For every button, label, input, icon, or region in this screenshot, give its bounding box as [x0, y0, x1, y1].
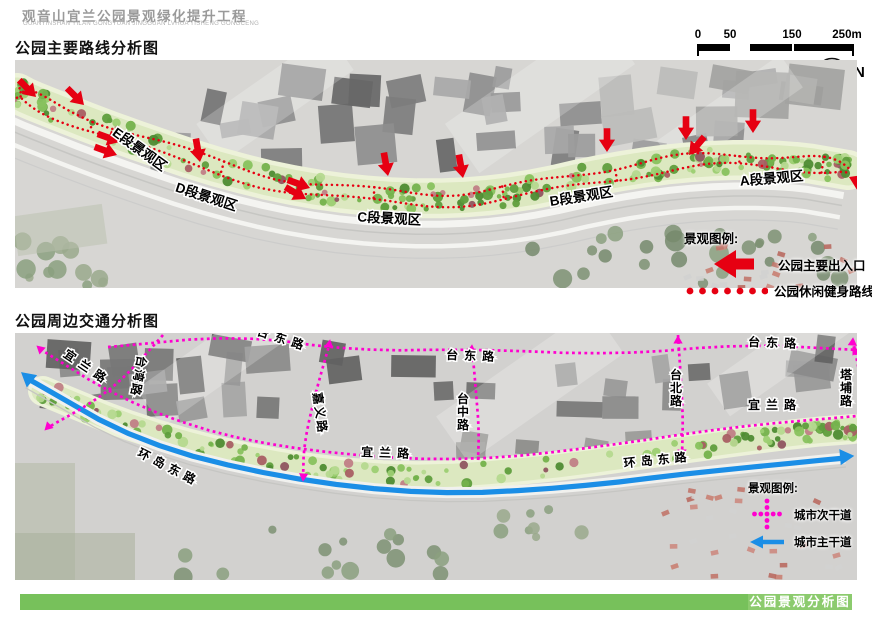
scale-end-tick: [852, 44, 854, 56]
traffic-analysis-canvas: 台东路台东路台东路宜兰路宜兰路宜兰路环岛东路环岛东路台湾路嘉义路台中路台北路塔埔…: [15, 333, 857, 580]
map2-legend-title: 景观图例:: [748, 480, 872, 496]
footer-bar: 公园景观分析图: [20, 594, 852, 610]
map1-legend-title: 景观图例:: [684, 228, 872, 247]
legend-entrance-row: 公园主要出入口: [684, 249, 872, 279]
entrance-legend-label: 公园主要出入口: [778, 255, 866, 274]
scale-bar: 0 50 150 250m: [694, 29, 864, 57]
map2-title: 公园周边交通分析图: [15, 310, 159, 331]
analysis-sheet: 观音山宜兰公园景观绿化提升工程 GUANYINSHAN YILAN GONGYU…: [0, 0, 872, 617]
zone-label: C段景观区: [357, 208, 422, 227]
legend-primary-road-row: 城市主干道: [748, 534, 872, 550]
map1-legend: 景观图例: 公园主要出入口 公园休闲健身路线: [684, 228, 872, 300]
scale-segment: [697, 44, 730, 51]
primary-road-label: 城市主干道: [794, 534, 852, 550]
road-label: 塔埔路: [840, 367, 853, 408]
primary-road-icon: [748, 534, 786, 550]
scale-tick-150: 150: [782, 29, 801, 41]
road-label: 台中路: [457, 391, 470, 432]
road-label: 台东路: [748, 334, 803, 351]
scale-tick-50: 50: [724, 29, 737, 41]
map2-legend: 景观图例: 城市次干道 城市主干道: [748, 480, 872, 550]
sheet-title: 公园景观分析图: [748, 594, 852, 610]
traffic-analysis-map: 台东路台东路台东路宜兰路宜兰路宜兰路环岛东路环岛东路台湾路嘉义路台中路台北路塔埔…: [15, 333, 857, 580]
scale-tick-0: 0: [695, 29, 701, 41]
map1-title: 公园主要路线分析图: [15, 37, 159, 58]
road-label: 台北路: [670, 367, 683, 408]
scale-end-tick: [697, 44, 699, 56]
secondary-road-label: 城市次干道: [794, 507, 852, 523]
scale-segment: [750, 44, 792, 51]
road-label: 宜兰路: [361, 444, 416, 461]
secondary-road-icon: [748, 498, 786, 532]
route-dots-icon: [684, 285, 768, 297]
road-label: 台东路: [446, 347, 501, 364]
route-legend-label: 公园休闲健身路线: [774, 281, 872, 300]
entrance-arrow-icon: [684, 249, 772, 279]
scale-tick-250: 250m: [832, 29, 861, 41]
road-label: 宜兰路: [748, 397, 802, 412]
project-subtitle: GUANYINSHAN YILAN GONGYUAN JINGGUAN LVHU…: [23, 21, 259, 27]
legend-secondary-road-row: 城市次干道: [748, 498, 872, 532]
legend-route-row: 公园休闲健身路线: [684, 281, 872, 300]
scale-segment: [794, 44, 853, 51]
